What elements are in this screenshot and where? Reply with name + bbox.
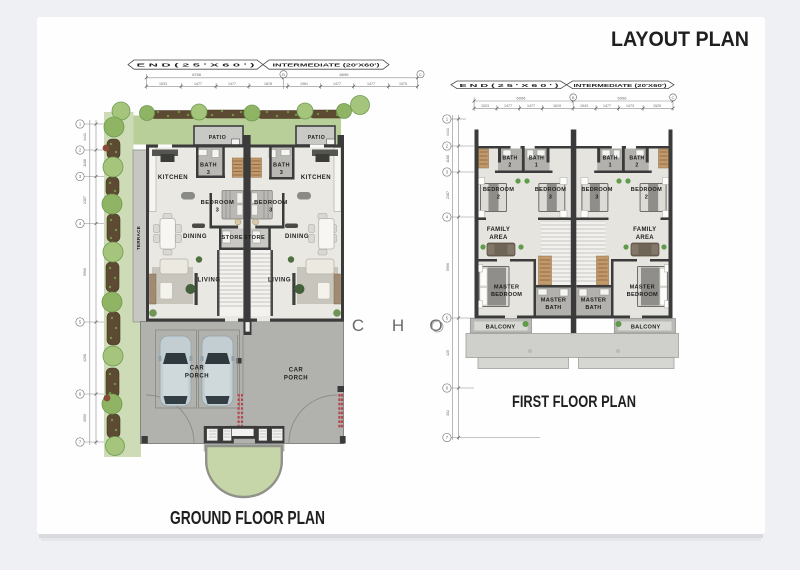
svg-text:STORE: STORE <box>221 235 243 241</box>
svg-text:MASTER: MASTER <box>494 285 519 291</box>
svg-text:3: 3 <box>269 208 273 214</box>
svg-text:1: 1 <box>609 163 612 169</box>
svg-text:AREA: AREA <box>489 235 508 241</box>
svg-text:LAYOUT PLAN: LAYOUT PLAN <box>611 28 749 51</box>
svg-text:1575: 1575 <box>399 82 407 86</box>
svg-text:2387: 2387 <box>446 191 450 199</box>
svg-text:BEDROOM: BEDROOM <box>627 292 658 298</box>
svg-text:5906: 5906 <box>83 268 87 276</box>
svg-text:C: C <box>419 72 422 77</box>
svg-text:1477: 1477 <box>367 82 375 86</box>
svg-text:BALCONY: BALCONY <box>486 325 516 331</box>
svg-text:6096: 6096 <box>517 95 527 100</box>
svg-text:DINING: DINING <box>183 234 207 240</box>
svg-text:BATH: BATH <box>200 163 217 169</box>
svg-text:1543: 1543 <box>580 104 588 108</box>
svg-text:CAR: CAR <box>190 366 205 372</box>
svg-text:INTERMEDIATE (20'X60'): INTERMEDIATE (20'X60') <box>273 63 381 68</box>
svg-text:1533: 1533 <box>159 82 167 86</box>
svg-text:FAMILY: FAMILY <box>487 227 510 233</box>
svg-text:302: 302 <box>446 410 450 416</box>
svg-text:AREA: AREA <box>636 235 655 241</box>
svg-text:TERRACE: TERRACE <box>136 226 141 250</box>
svg-text:1477: 1477 <box>228 82 236 86</box>
svg-text:3: 3 <box>549 195 552 201</box>
svg-text:BATH: BATH <box>502 156 517 162</box>
svg-text:3050: 3050 <box>83 414 87 422</box>
svg-text:1477: 1477 <box>603 104 611 108</box>
svg-text:BATH: BATH <box>585 305 601 311</box>
svg-text:1188: 1188 <box>446 155 450 163</box>
svg-text:STORE: STORE <box>244 235 266 241</box>
svg-text:C: C <box>352 316 364 335</box>
svg-text:FAMILY: FAMILY <box>633 227 656 233</box>
svg-text:1477: 1477 <box>333 82 341 86</box>
svg-text:1: 1 <box>535 163 538 169</box>
svg-text:LIVING: LIVING <box>268 278 291 284</box>
svg-text:6096: 6096 <box>618 95 628 100</box>
svg-text:PORCH: PORCH <box>284 376 308 382</box>
svg-text:GROUND FLOOR PLAN: GROUND FLOOR PLAN <box>170 507 325 528</box>
svg-text:8766: 8766 <box>192 72 202 77</box>
svg-text:2: 2 <box>508 163 511 169</box>
svg-text:1525: 1525 <box>653 104 661 108</box>
svg-text:MASTER: MASTER <box>541 298 566 304</box>
svg-text:8696: 8696 <box>340 72 350 77</box>
svg-text:PATIO: PATIO <box>209 135 227 141</box>
svg-text:1961: 1961 <box>300 82 308 86</box>
svg-text:2: 2 <box>497 195 500 201</box>
svg-text:4441: 4441 <box>83 133 87 141</box>
svg-text:BALCONY: BALCONY <box>631 325 661 331</box>
svg-text:1473: 1473 <box>626 104 634 108</box>
svg-text:BATH: BATH <box>273 163 290 169</box>
svg-text:3: 3 <box>207 170 211 176</box>
svg-text:DINING: DINING <box>285 234 309 240</box>
svg-text:BATH: BATH <box>603 156 618 162</box>
svg-text:BEDROOM: BEDROOM <box>535 187 566 193</box>
svg-text:BEDROOM: BEDROOM <box>491 292 522 298</box>
svg-text:1477: 1477 <box>194 82 202 86</box>
svg-text:1523: 1523 <box>481 104 489 108</box>
svg-text:5906: 5906 <box>446 263 450 271</box>
svg-text:E N D ( 2 5 ' X 6 0 ' ): E N D ( 2 5 ' X 6 0 ' ) <box>460 83 560 88</box>
svg-text:LIVING: LIVING <box>197 278 220 284</box>
svg-text:2: 2 <box>635 163 638 169</box>
svg-text:425: 425 <box>446 350 450 356</box>
svg-text:2387: 2387 <box>83 196 87 204</box>
svg-text:FIRST FLOOR PLAN: FIRST FLOOR PLAN <box>512 392 636 411</box>
svg-text:1188: 1188 <box>83 159 87 167</box>
svg-text:BEDROOM: BEDROOM <box>201 200 235 206</box>
svg-text:KITCHEN: KITCHEN <box>158 175 188 181</box>
svg-text:B: B <box>282 72 285 77</box>
svg-text:3: 3 <box>280 170 284 176</box>
svg-text:MASTER: MASTER <box>630 285 655 291</box>
svg-text:4441: 4441 <box>446 128 450 136</box>
svg-text:1477: 1477 <box>504 104 512 108</box>
svg-text:BATH: BATH <box>629 156 644 162</box>
svg-text:3: 3 <box>216 208 220 214</box>
svg-text:PORCH: PORCH <box>185 374 209 380</box>
svg-text:H: H <box>392 316 404 335</box>
svg-text:1878: 1878 <box>264 82 272 86</box>
svg-text:1619: 1619 <box>553 104 561 108</box>
svg-text:BEDROOM: BEDROOM <box>254 200 288 206</box>
svg-text:PATIO: PATIO <box>308 135 326 141</box>
svg-text:CAR: CAR <box>289 368 304 374</box>
svg-text:3: 3 <box>595 195 598 201</box>
svg-text:2: 2 <box>645 195 648 201</box>
svg-text:BEDROOM: BEDROOM <box>483 187 514 193</box>
svg-text:BATH: BATH <box>545 305 561 311</box>
svg-text:C: C <box>672 95 675 100</box>
svg-text:1477: 1477 <box>527 104 535 108</box>
svg-text:4258: 4258 <box>83 354 87 362</box>
svg-text:B: B <box>572 95 575 100</box>
svg-text:BATH: BATH <box>529 156 544 162</box>
svg-text:BEDROOM: BEDROOM <box>631 187 662 193</box>
svg-text:INTERMEDIATE (20'X60'): INTERMEDIATE (20'X60') <box>574 83 668 88</box>
svg-text:KITCHEN: KITCHEN <box>301 175 331 181</box>
svg-text:E N D ( 2 5 ' X 6 0 ' ): E N D ( 2 5 ' X 6 0 ' ) <box>137 63 256 68</box>
svg-text:MASTER: MASTER <box>581 298 606 304</box>
svg-text:BEDROOM: BEDROOM <box>581 187 612 193</box>
